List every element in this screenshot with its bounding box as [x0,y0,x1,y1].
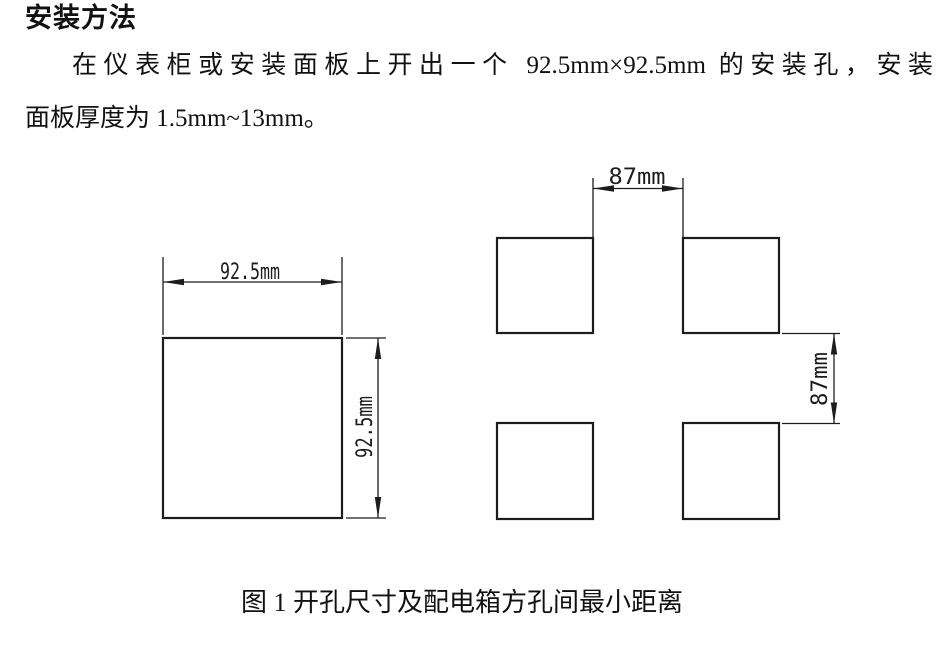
hole-square-bottom-left [497,423,593,519]
figure-caption: 图 1 开孔尺寸及配电箱方孔间最小距离 [0,586,924,620]
arrowhead-right-icon [321,279,342,285]
vertical-spacing-label: 87mm [808,352,833,406]
arrowhead-up-icon [831,334,837,355]
figure-diagram: 92.5mm 92.5mm [0,0,938,646]
hole-square-top-left [497,238,593,333]
arrowhead-up-icon [375,338,381,359]
width-dimension-label: 92.5mm [220,260,280,285]
arrowhead-left-icon [163,279,184,285]
width-dimension: 92.5mm [163,257,342,335]
cutout-square-figure: 92.5mm 92.5mm [163,257,386,518]
cutout-square [163,338,342,518]
hole-spacing-figure: 87mm 87mm [497,165,840,519]
hole-square-bottom-right [683,423,779,519]
vertical-spacing-dimension: 87mm [782,334,840,424]
height-dimension-label: 92.5mm [353,396,378,458]
document-page: 安装方法 在仪表柜或安装面板上开出一个 92.5mm×92.5mm 的安装孔，安… [0,0,938,646]
height-dimension: 92.5mm [346,338,386,518]
horizontal-spacing-dimension: 87mm [593,165,683,238]
horizontal-spacing-label: 87mm [609,165,666,190]
arrowhead-down-icon [375,497,381,518]
hole-square-top-right [683,238,779,333]
